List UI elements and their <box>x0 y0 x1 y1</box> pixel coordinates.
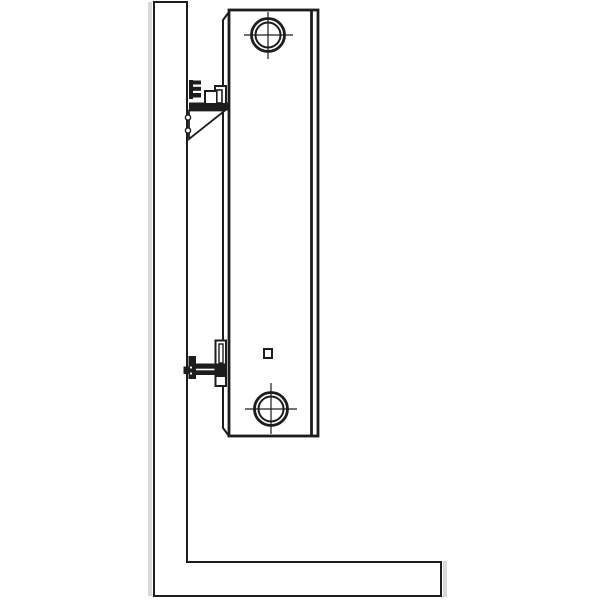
vent-square-marker <box>264 349 272 358</box>
radiator-body <box>223 10 318 436</box>
rail-tooth <box>193 93 201 98</box>
upper-bracket-hook <box>205 86 226 103</box>
floor-end-shadow <box>443 561 447 597</box>
rail-tooth <box>193 87 201 91</box>
wall-outer-shadow <box>148 2 152 596</box>
wall-plate-hole <box>190 366 192 368</box>
upper-bracket-hook-slot <box>217 90 222 103</box>
rail-tooth <box>193 81 201 85</box>
lower-wall-bracket <box>184 341 227 387</box>
wall-plate-hole <box>190 372 192 374</box>
upper-bracket-arm <box>189 103 229 111</box>
upper-bracket-toothed-rail <box>189 80 201 99</box>
toothed-rail-spine <box>189 80 193 99</box>
lower-bracket-screw <box>184 367 190 375</box>
gusset-screw-hole <box>185 115 190 120</box>
radiator-installation-diagram <box>0 0 600 600</box>
lower-bracket-clip-block <box>216 364 227 378</box>
lower-bracket-arm-split-line <box>196 369 216 371</box>
gusset-screw-hole <box>185 128 190 133</box>
radiator-panel-outline <box>229 10 318 436</box>
lower-bracket-wall-plate <box>189 356 197 379</box>
upper-bracket-gusset <box>189 111 225 140</box>
